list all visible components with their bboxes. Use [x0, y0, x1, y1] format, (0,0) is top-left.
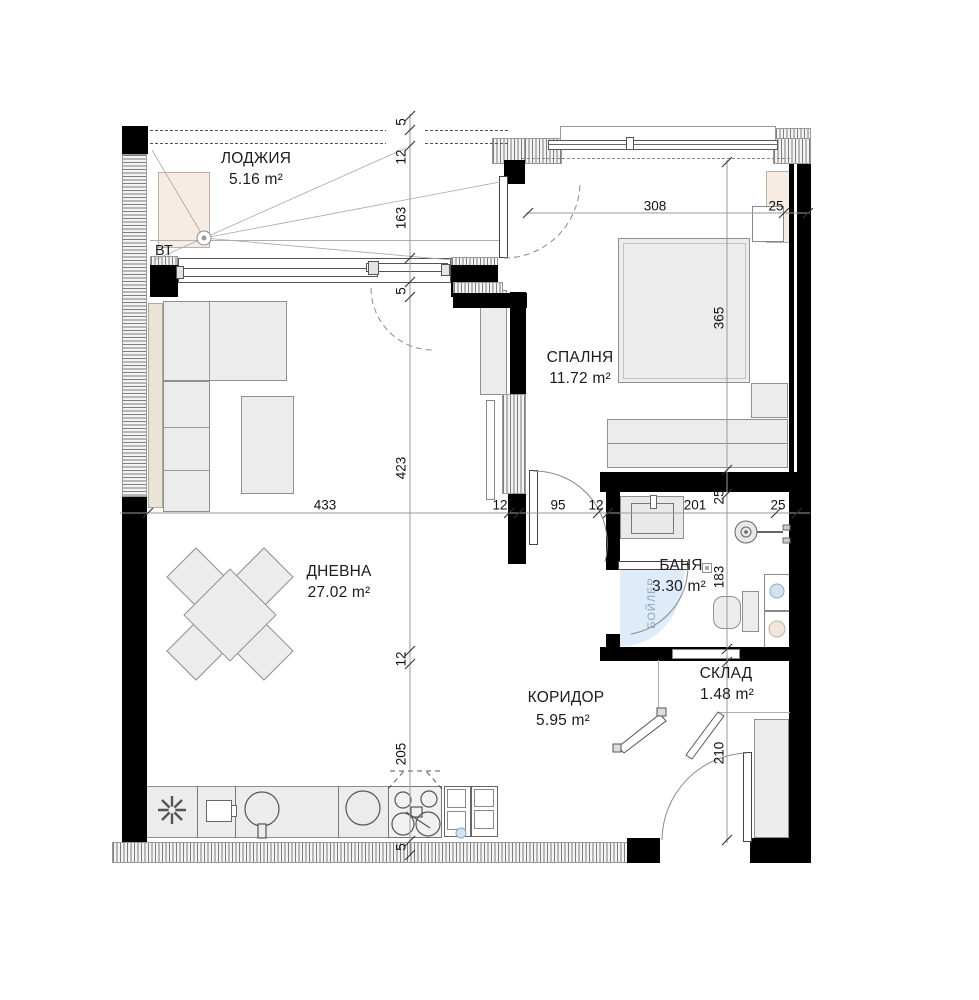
dim-label: 25: [768, 199, 783, 214]
dim-label: 5: [394, 287, 409, 295]
dim-label: 25: [712, 489, 727, 504]
sink-drain-icon: [456, 828, 466, 838]
dim-label: 12: [492, 498, 507, 513]
dim-label: 201: [684, 498, 707, 513]
dim-label: 308: [644, 199, 667, 214]
room-label-corridor: КОРИДОР: [528, 689, 605, 707]
room-label-bedroom: СПАЛНЯ: [547, 349, 614, 367]
dimension-lines: [120, 114, 810, 856]
hood-dashed-icon: [388, 771, 442, 789]
entrance-door-arc: [662, 753, 747, 840]
room-label-storage: СКЛАД: [700, 665, 753, 683]
room-area-corridor: 5.95 m²: [536, 712, 590, 730]
room-area-loggia: 5.16 m²: [229, 171, 283, 189]
hinge-cap: [657, 708, 666, 716]
dim-label: 12: [588, 498, 603, 513]
stove-burners-icon: [392, 791, 440, 836]
hinge-cap: [613, 744, 621, 752]
bathroom-door-arc: [631, 566, 688, 634]
dim-label: 210: [712, 742, 727, 765]
dim-label: 5: [394, 843, 409, 851]
boiler-label: БОЙЛЕР: [646, 577, 658, 628]
vent-label: ВТ: [155, 243, 173, 259]
dim-label: 25: [770, 498, 785, 513]
dim-label: 433: [314, 498, 337, 513]
dim-label: 365: [712, 307, 727, 330]
loggia-living-door-arc: [371, 288, 433, 350]
dim-label: 423: [394, 457, 409, 480]
room-area-bedroom: 11.72 m²: [549, 370, 611, 388]
kitchen-sink-icon: [245, 791, 380, 838]
corridor-door-arc: [533, 471, 607, 562]
plan-overlay: [0, 0, 979, 1000]
bath-open-leaf: [618, 714, 666, 753]
loggia-bedroom-door-arc: [504, 182, 580, 258]
laundry-basin-icon: [769, 621, 785, 637]
room-area-storage: 1.48 m²: [700, 686, 754, 704]
open-door-leaves: [613, 708, 724, 759]
dim-label: 12: [394, 149, 409, 164]
dim-label: 12: [394, 651, 409, 666]
dim-label: 205: [394, 743, 409, 766]
dim-label: 183: [712, 566, 727, 589]
washer-door-icon: [770, 584, 784, 598]
room-label-loggia: ЛОДЖИЯ: [221, 150, 291, 168]
loggia-point-dot: [202, 236, 207, 241]
dim-label: 95: [550, 498, 565, 513]
fridge-icon: [158, 796, 186, 824]
room-area-bath: 3.30 m²: [652, 578, 706, 596]
floor-plan: ЛОДЖИЯ 5.16 m² СПАЛНЯ 11.72 m² ДНЕВНА 27…: [0, 0, 979, 1000]
room-label-living: ДНЕВНА: [306, 563, 371, 581]
room-area-living: 27.02 m²: [308, 584, 371, 602]
dim-label: 5: [394, 118, 409, 126]
room-label-bath: БАНЯ: [659, 557, 702, 575]
shower-icon: [735, 521, 790, 543]
dim-label: 163: [394, 207, 409, 230]
